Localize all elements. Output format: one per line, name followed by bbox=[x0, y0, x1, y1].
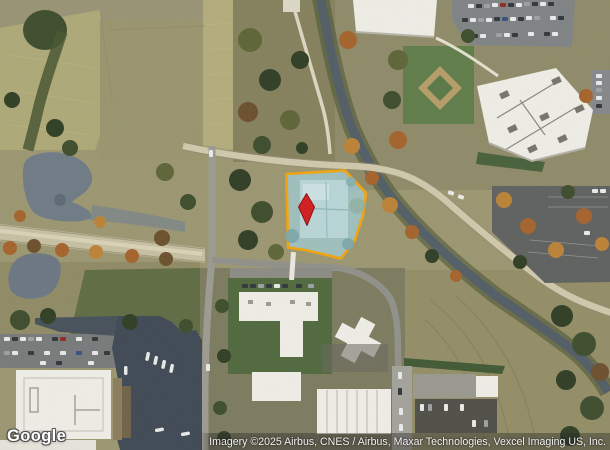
attribution-bar: Imagery ©2025 Airbus, CNES / Airbus, Max… bbox=[199, 433, 610, 450]
google-logo[interactable]: Google bbox=[7, 427, 66, 446]
attribution-text: Imagery ©2025 Airbus, CNES / Airbus, Max… bbox=[209, 436, 606, 448]
satellite-map[interactable] bbox=[0, 0, 610, 450]
imagery-grain bbox=[0, 0, 610, 450]
map-viewport[interactable]: Google Imagery ©2025 Airbus, CNES / Airb… bbox=[0, 0, 610, 450]
